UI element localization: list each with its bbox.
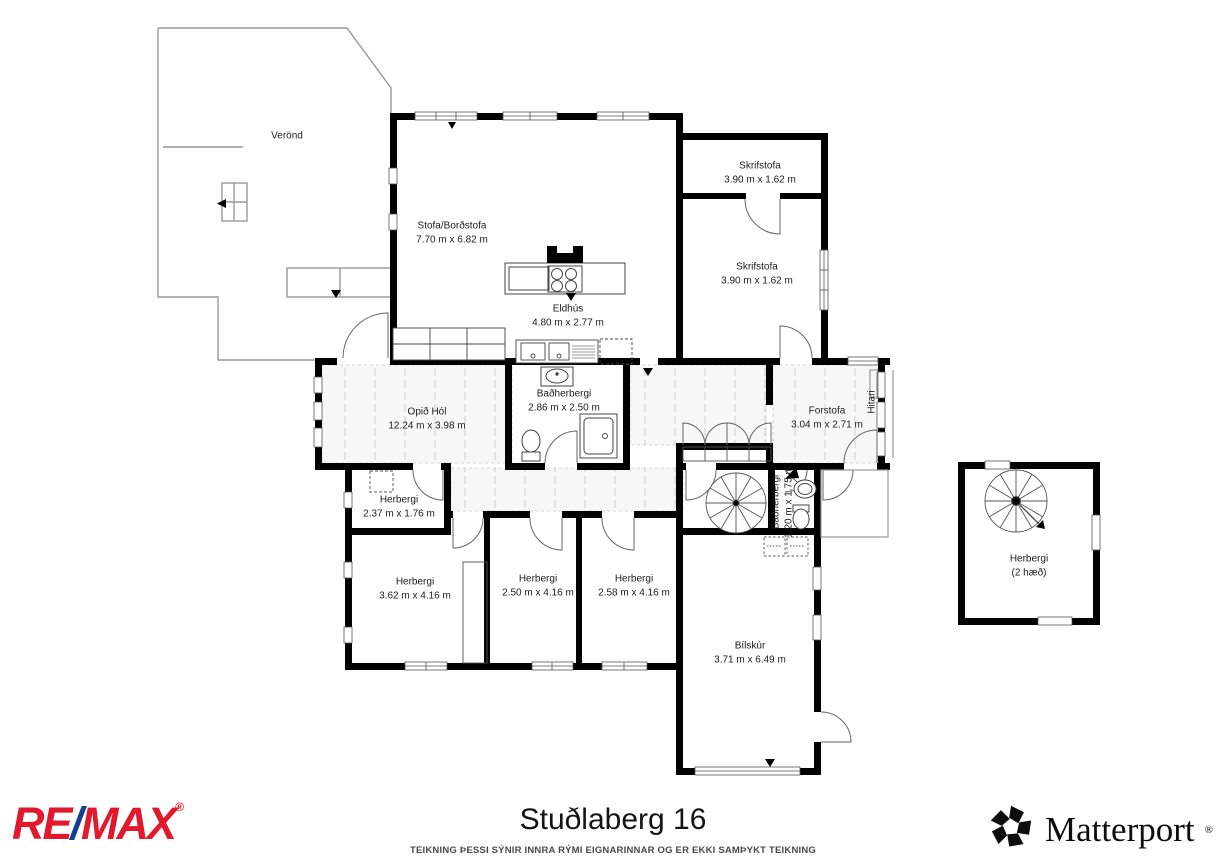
remax-registered-mark: ® (175, 800, 184, 814)
room-label-stofa: Stofa/Borðstofa7.70 m x 6.82 m (416, 220, 488, 247)
room-label-herbergi-1: Herbergi3.62 m x 4.16 m (379, 576, 451, 603)
room-label-eldhus: Eldhús4.80 m x 2.77 m (532, 303, 604, 330)
plan-title: Stuðlaberg 16 (520, 803, 707, 837)
matterport-wordmark: Matterport (1045, 810, 1195, 850)
room-label-herbergi-small: Herbergi2.37 m x 1.76 m (363, 494, 435, 521)
fireplace-icon (547, 246, 583, 263)
disclaimer-text: TEIKNING ÞESSI SÝNIR INNRA RÝMI EIGNARIN… (410, 845, 816, 856)
washer-dryer-icons (764, 537, 808, 556)
room-label-herbergi-2haed: Herbergi(2 hæð) (1010, 553, 1048, 580)
floor-plan-page: Verönd Stofa/Borðstofa7.70 m x 6.82 m Sk… (0, 0, 1227, 867)
floor-plan: Verönd Stofa/Borðstofa7.70 m x 6.82 m Sk… (0, 0, 1227, 795)
matterport-logo: Matterport® (987, 803, 1213, 856)
room-label-skrifstofa-1: Skrifstofa3.90 m x 1.62 m (724, 160, 796, 187)
spiral-staircase-icon (706, 473, 766, 533)
room-label-badherbergi: Baðherbergi2.86 m x 2.50 m (528, 388, 600, 415)
matterport-pinwheel-icon (987, 803, 1035, 856)
footer: RE/MAX® Stuðlaberg 16 TEIKNING ÞESSI SÝN… (0, 795, 1227, 867)
room-label-verond: Verönd (271, 129, 303, 143)
room-label-herbergi-2: Herbergi2.50 m x 4.16 m (502, 573, 574, 600)
spiral-staircase-2-icon (985, 470, 1047, 532)
kitchen-island-icon (505, 263, 625, 294)
remax-logo: RE/MAX® (12, 801, 184, 846)
floor-plan-drawing (0, 0, 1227, 795)
small-bathroom-fixtures (793, 480, 816, 529)
matterport-registered-mark: ® (1205, 824, 1213, 836)
room-label-opid-hol: Opið Hól12.24 m x 3.98 m (388, 406, 465, 433)
room-label-hitari: Hitari (865, 390, 879, 413)
room-label-forstofa: Forstofa3.04 m x 2.71 m (791, 405, 863, 432)
room-label-badherbergi-small: Baðherbergi1.20 m x 1.75 m (771, 466, 796, 538)
room-label-bilskur: Bílskúr3.71 m x 6.49 m (714, 640, 786, 667)
room-label-skrifstofa-2: Skrifstofa3.90 m x 1.62 m (721, 261, 793, 288)
room-label-herbergi-3: Herbergi2.58 m x 4.16 m (598, 573, 670, 600)
veranda-outline (158, 28, 393, 360)
